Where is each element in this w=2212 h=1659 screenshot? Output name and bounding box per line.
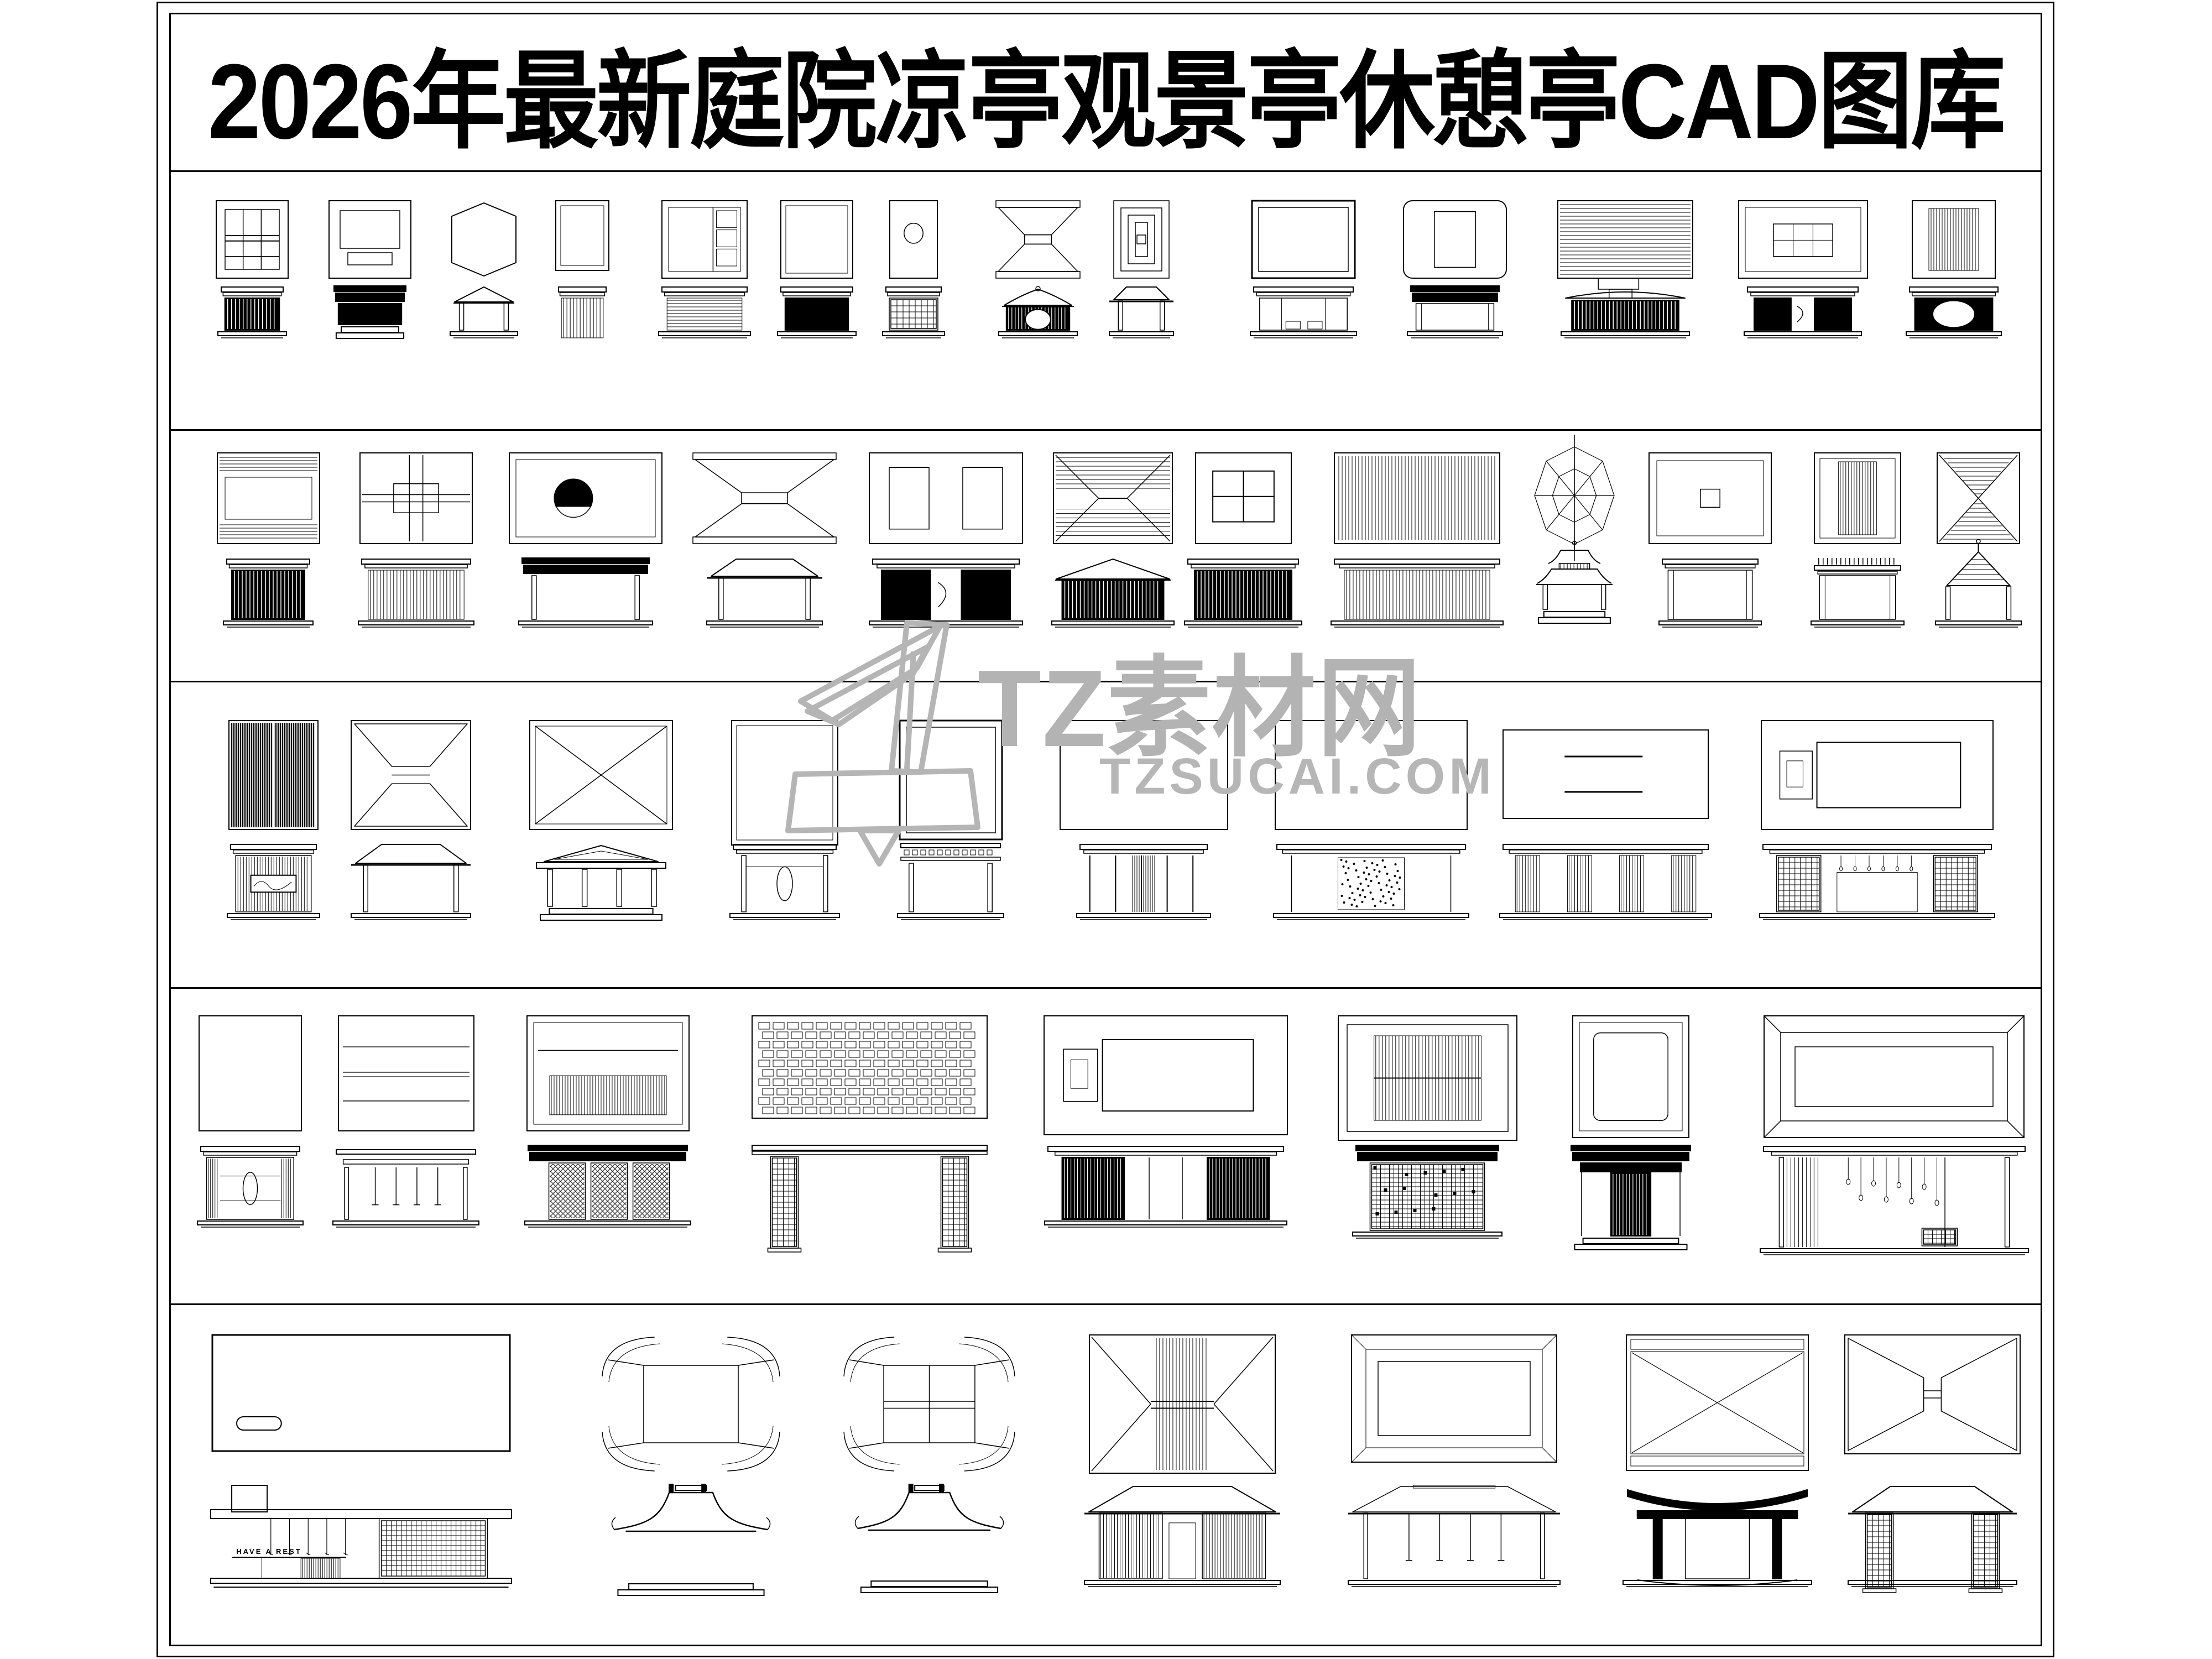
pavilion-plan-r2c2 (360, 453, 472, 544)
pavilion-elevation-r4c7 (1571, 1145, 1691, 1250)
pavilion-plan-r2c3 (509, 453, 662, 544)
pavilion-elevation-r2c11 (1814, 558, 1901, 628)
pavilion-elevation-r3c9 (1763, 843, 1991, 921)
svg-text:HAVE A REST: HAVE A REST (236, 1547, 301, 1556)
pavilion-plan-r3c6 (1060, 721, 1228, 830)
pavilion-elevation-r2c10 (1662, 558, 1758, 628)
pavilion-elevation-r1c5 (662, 286, 747, 339)
pavilion-plan-r1c10 (1252, 201, 1355, 278)
pavilion-plan-r2c9 (1533, 442, 1616, 553)
pavilion-elevation-r1c11 (1411, 286, 1499, 339)
pavilion-elevation-r2c7 (1188, 558, 1298, 628)
pavilion-elevation-r1c1 (221, 286, 283, 339)
pavilion-elevation-r5c4 (1088, 1485, 1277, 1588)
pavilion-elevation-r3c4 (733, 843, 836, 921)
pavilion-plan-r1c12 (1558, 201, 1693, 278)
pavilion-plan-r1c7 (890, 201, 937, 278)
pavilion-elevation-r1c6 (781, 286, 853, 339)
pavilion-plan-r3c3 (530, 721, 672, 830)
pavilion-plan-r2c6 (1053, 453, 1172, 544)
pavilion-elevation-r1c14 (1910, 286, 1998, 339)
pavilion-plan-r1c1 (216, 201, 288, 278)
pavilion-elevation-r1c4 (559, 286, 606, 339)
pavilion-plan-r1c11 (1404, 201, 1506, 278)
pavilion-plan-r3c4 (732, 721, 838, 845)
pavilion-elevation-r2c9 (1536, 540, 1613, 624)
pavilion-elevation-r3c7 (1277, 843, 1465, 921)
pavilion-elevation-r2c6 (1055, 558, 1171, 628)
pavilion-elevation-r1c8 (1002, 286, 1074, 339)
divider-2 (169, 429, 2042, 431)
pavilion-elevation-r1c13 (1747, 286, 1858, 339)
pavilion-plan-r1c13 (1739, 201, 1867, 278)
pavilion-plan-r3c5 (900, 721, 1002, 839)
pavilion-elevation-r4c1 (201, 1145, 300, 1228)
pavilion-elevation-r4c8 (1764, 1145, 2025, 1256)
page-title: 2026年最新庭院凉亭观景亭休憩亭CAD图库 (169, 3, 2042, 180)
pavilion-elevation-r3c5 (901, 843, 1000, 921)
pavilion-elevation-r3c2 (354, 843, 467, 921)
pavilion-elevation-r1c3 (453, 286, 514, 339)
pavilion-plan-r4c2 (338, 1016, 474, 1131)
pavilion-elevation-r3c3 (536, 843, 666, 921)
pavilion-elevation-r5c6 (1626, 1485, 1808, 1588)
pavilion-elevation-r5c1: HAVE A REST (211, 1485, 512, 1590)
pavilion-elevation-r5c5 (1352, 1485, 1557, 1588)
pavilion-elevation-r2c12 (1939, 546, 2018, 628)
divider-5 (169, 1303, 2042, 1305)
divider-1 (169, 170, 2042, 172)
pavilion-plan-r3c2 (351, 721, 471, 830)
pavilion-elevation-r2c1 (227, 558, 310, 628)
pavilion-plan-r5c2 (600, 1335, 782, 1473)
pavilion-plan-r3c9 (1761, 721, 1993, 830)
pavilion-plan-r3c8 (1503, 730, 1708, 818)
pavilion-elevation-r2c8 (1334, 558, 1500, 628)
pavilion-plan-r5c4 (1089, 1335, 1275, 1473)
pavilion-plan-r1c8 (996, 201, 1080, 278)
pavilion-plan-r4c1 (199, 1016, 301, 1131)
pavilion-plan-r2c10 (1649, 453, 1771, 544)
pavilion-elevation-r4c4 (752, 1145, 987, 1239)
pavilion-plan-r5c5 (1352, 1335, 1557, 1462)
pavilion-elevation-r1c2 (334, 286, 406, 339)
pavilion-elevation-r5c3 (857, 1485, 1002, 1593)
pavilion-elevation-r3c6 (1080, 843, 1207, 921)
pavilion-elevation-r2c4 (710, 558, 819, 628)
pavilion-elevation-r4c2 (336, 1145, 476, 1228)
pavilion-plan-r4c6 (1338, 1016, 1517, 1140)
pavilion-elevation-r5c2 (613, 1485, 769, 1596)
pavilion-elevation-r5c7 (1851, 1485, 2013, 1588)
pavilion-plan-r1c4 (556, 201, 609, 270)
pavilion-elevation-r4c5 (1048, 1145, 1284, 1228)
pavilion-plan-r1c6 (781, 201, 853, 278)
pavilion-plan-r2c7 (1196, 453, 1291, 544)
pavilion-plan-r3c1 (229, 721, 318, 830)
divider-3 (169, 681, 2042, 682)
pavilion-plan-r2c4 (693, 453, 836, 544)
cad-sheet: 2026年最新庭院凉亭观景亭休憩亭CAD图库 HAVE A REST TZ素材网… (0, 0, 2212, 1659)
pavilion-elevation-r1c10 (1254, 286, 1353, 339)
pavilion-plan-r1c9 (1114, 201, 1169, 278)
pavilion-plan-r4c4 (752, 1016, 987, 1118)
pavilion-elevation-r2c2 (362, 558, 471, 628)
pavilion-plan-r4c3 (527, 1016, 689, 1131)
pavilion-plan-r1c14 (1912, 201, 1995, 278)
pavilion-plan-r5c1 (212, 1335, 510, 1451)
pavilion-elevation-r1c12 (1564, 286, 1686, 339)
pavilion-plan-r1c3 (448, 201, 519, 278)
pavilion-elevation-r3c1 (231, 843, 316, 921)
pavilion-plan-r1c5 (662, 201, 747, 278)
pavilion-plan-r5c3 (842, 1335, 1017, 1473)
pavilion-elevation-r2c5 (873, 558, 1019, 628)
pavilion-plan-r3c7 (1275, 721, 1467, 830)
pavilion-plan-r2c11 (1814, 453, 1901, 544)
pavilion-plan-r4c7 (1573, 1016, 1689, 1138)
pavilion-elevation-r1c7 (886, 286, 941, 339)
pavilion-plan-r2c12 (1937, 453, 2020, 544)
pavilion-elevation-r4c3 (528, 1145, 687, 1228)
pavilion-plan-r2c1 (217, 453, 320, 544)
pavilion-elevation-r3c8 (1503, 843, 1708, 921)
divider-4 (169, 987, 2042, 989)
pavilion-plan-r5c6 (1626, 1335, 1808, 1470)
pavilion-plan-r2c8 (1334, 453, 1500, 544)
pavilion-plan-r4c8 (1764, 1016, 2024, 1138)
pavilion-elevation-r2c3 (522, 558, 649, 628)
pavilion-plan-r5c7 (1845, 1335, 2020, 1454)
pavilion-plan-r4c5 (1044, 1016, 1287, 1135)
pavilion-plan-r2c5 (869, 453, 1022, 544)
pavilion-elevation-r4c6 (1356, 1145, 1499, 1239)
pavilion-plan-r1c2 (329, 201, 411, 278)
pavilion-elevation-r1c9 (1113, 286, 1170, 339)
